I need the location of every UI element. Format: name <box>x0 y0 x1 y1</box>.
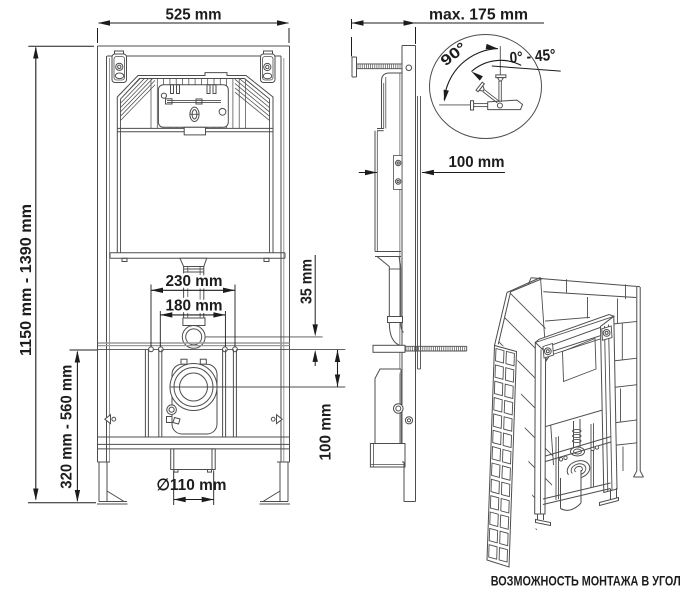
svg-text:100 mm: 100 mm <box>318 404 335 461</box>
svg-text:∅110 mm: ∅110 mm <box>157 477 227 494</box>
svg-text:525 mm: 525 mm <box>166 7 222 24</box>
svg-text:320 mm - 560 mm: 320 mm - 560 mm <box>59 365 76 489</box>
svg-text:max. 175 mm: max. 175 mm <box>429 7 528 24</box>
svg-text:0° - 45°: 0° - 45° <box>509 47 556 67</box>
svg-text:230 mm: 230 mm <box>166 273 223 290</box>
svg-text:1150 mm - 1390 mm: 1150 mm - 1390 mm <box>18 204 35 356</box>
svg-text:100 mm: 100 mm <box>449 154 505 171</box>
svg-text:ВОЗМОЖНОСТЬ МОНТАЖА В УГОЛ: ВОЗМОЖНОСТЬ МОНТАЖА В УГОЛ <box>491 573 681 588</box>
svg-text:35 mm: 35 mm <box>299 259 316 304</box>
svg-text:180 mm: 180 mm <box>166 298 223 315</box>
